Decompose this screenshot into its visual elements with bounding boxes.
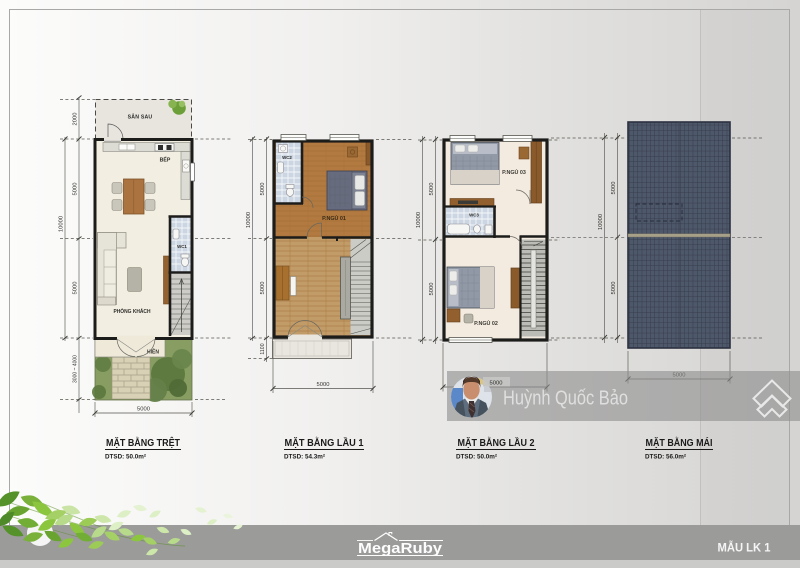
svg-text:10000: 10000 <box>59 216 65 232</box>
svg-text:5000: 5000 <box>260 282 266 295</box>
svg-text:5000: 5000 <box>429 183 435 196</box>
svg-text:3000 ~ 4000: 3000 ~ 4000 <box>73 355 79 383</box>
svg-text:DTSD: 50.0m²: DTSD: 50.0m² <box>105 454 146 461</box>
svg-text:P.NGỦ 03: P.NGỦ 03 <box>502 169 526 176</box>
svg-text:MegaRuby: MegaRuby <box>358 541 442 557</box>
svg-text:DTSD: 50.0m²: DTSD: 50.0m² <box>456 454 497 461</box>
svg-text:Huỳnh Quốc Bảo: Huỳnh Quốc Bảo <box>503 387 628 410</box>
svg-text:WC3: WC3 <box>469 213 479 218</box>
svg-text:5000: 5000 <box>611 282 617 295</box>
svg-text:MẶT BẰNG MÁI: MẶT BẰNG MÁI <box>646 436 713 449</box>
svg-text:10000: 10000 <box>416 212 422 228</box>
svg-text:DTSD: 56.0m²: DTSD: 56.0m² <box>645 454 686 461</box>
svg-text:MẶT BẰNG LẦU 2: MẶT BẰNG LẦU 2 <box>458 436 535 449</box>
svg-text:10000: 10000 <box>598 214 604 230</box>
svg-text:2000: 2000 <box>73 113 79 126</box>
svg-text:SÂN SAU: SÂN SAU <box>128 114 153 121</box>
svg-text:5000: 5000 <box>260 183 266 196</box>
svg-text:WC2: WC2 <box>282 155 292 160</box>
svg-text:5000: 5000 <box>73 183 79 196</box>
svg-text:10000: 10000 <box>246 212 252 228</box>
svg-text:1100: 1100 <box>260 343 266 354</box>
svg-text:MẶT BẰNG LẦU 1: MẶT BẰNG LẦU 1 <box>285 436 364 449</box>
svg-text:5000: 5000 <box>317 382 330 388</box>
svg-text:MẶT BẰNG TRỆT: MẶT BẰNG TRỆT <box>106 436 180 449</box>
svg-text:5000: 5000 <box>490 381 503 387</box>
svg-text:PHÒNG KHÁCH: PHÒNG KHÁCH <box>114 307 151 315</box>
svg-text:DTSD: 54.3m²: DTSD: 54.3m² <box>284 454 325 461</box>
svg-text:P.NGỦ 01: P.NGỦ 01 <box>322 215 346 222</box>
svg-text:5000: 5000 <box>73 282 79 295</box>
svg-text:MẪU LK 1: MẪU LK 1 <box>718 542 772 555</box>
svg-text:5000: 5000 <box>429 283 435 296</box>
svg-text:P.NGỦ 02: P.NGỦ 02 <box>474 320 498 327</box>
svg-text:BẾP: BẾP <box>160 157 171 164</box>
svg-text:5000: 5000 <box>137 407 150 413</box>
svg-text:HIÊN: HIÊN <box>147 348 159 356</box>
svg-text:WC1: WC1 <box>177 244 187 249</box>
svg-text:5000: 5000 <box>611 182 617 195</box>
